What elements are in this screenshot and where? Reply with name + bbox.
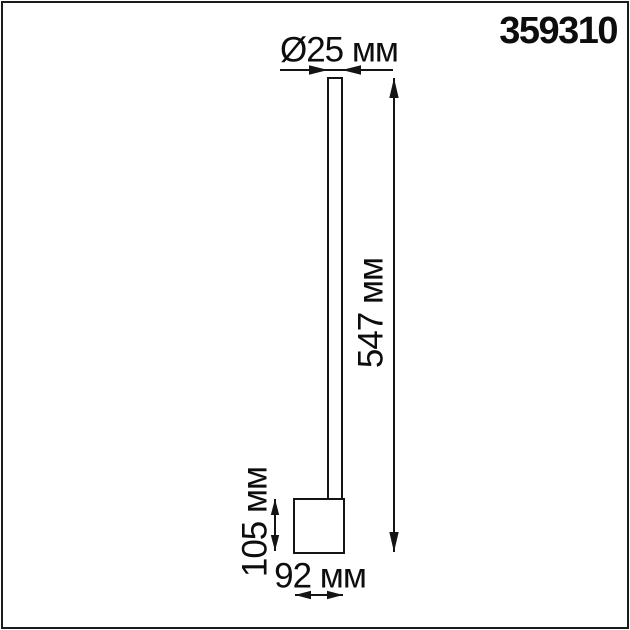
arrowhead-down-icon: [389, 532, 398, 552]
lamp-base-outline: [294, 499, 344, 553]
base-width-dimension-label: 92 мм: [274, 559, 366, 594]
base-height-dimension-label: 105 мм: [238, 467, 273, 577]
technical-drawing: [0, 0, 630, 630]
drawing-canvas: 359310 Ø25 мм 547 мм 105 мм 92 мм: [0, 0, 630, 630]
diameter-dimension-label: Ø25 мм: [280, 33, 398, 68]
product-code: 359310: [499, 12, 617, 50]
lamp-rod-outline: [328, 78, 342, 499]
arrowhead-up-icon: [389, 78, 398, 98]
total-height-dimension-label: 547 мм: [354, 258, 389, 368]
